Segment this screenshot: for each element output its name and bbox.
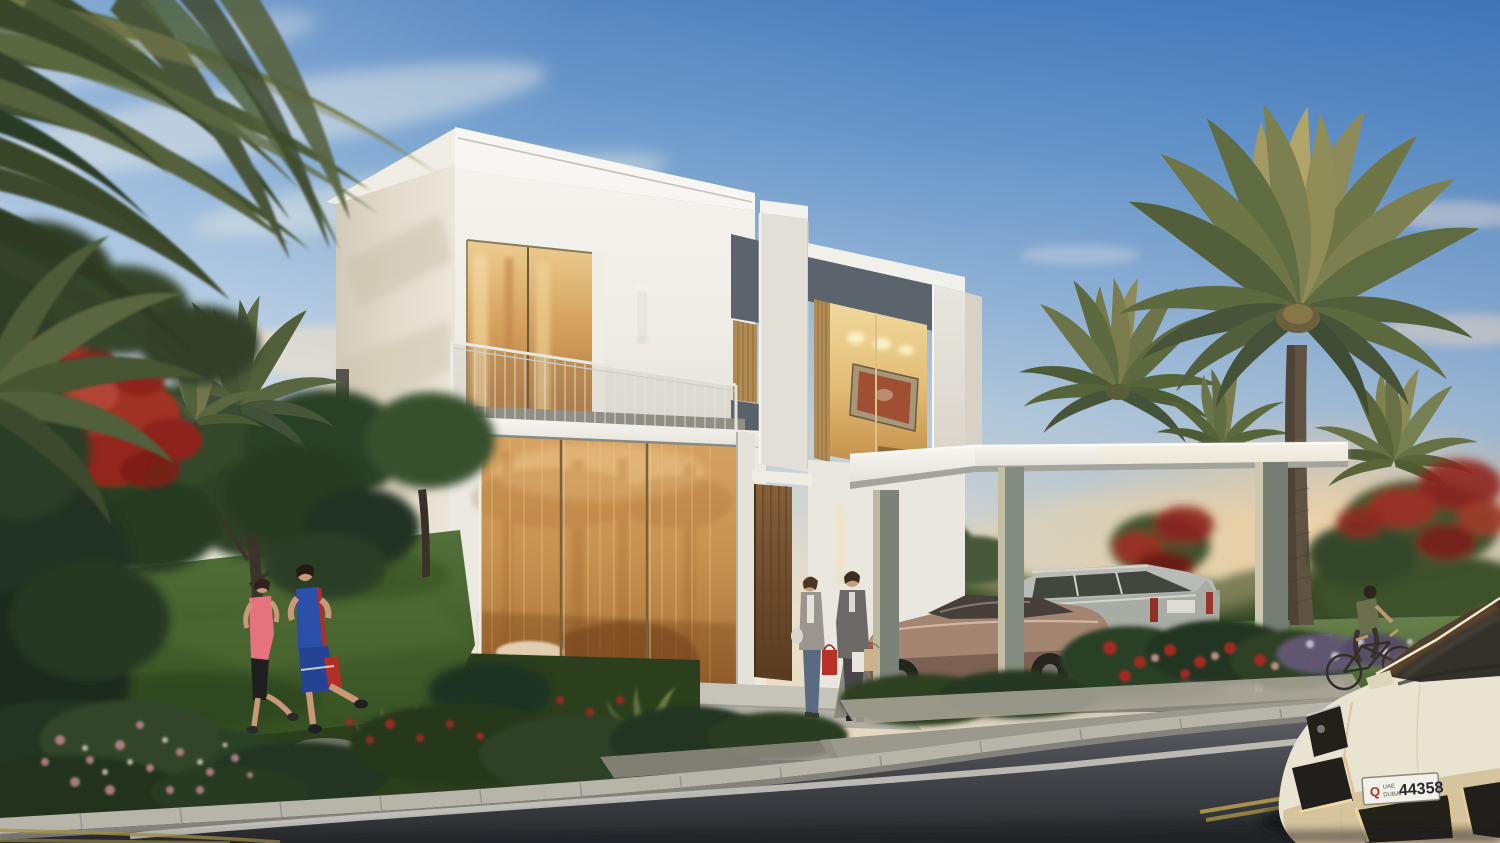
svg-text:44358: 44358: [1398, 779, 1444, 799]
svg-text:UAE: UAE: [1383, 784, 1396, 791]
svg-text:Q: Q: [1369, 784, 1380, 800]
